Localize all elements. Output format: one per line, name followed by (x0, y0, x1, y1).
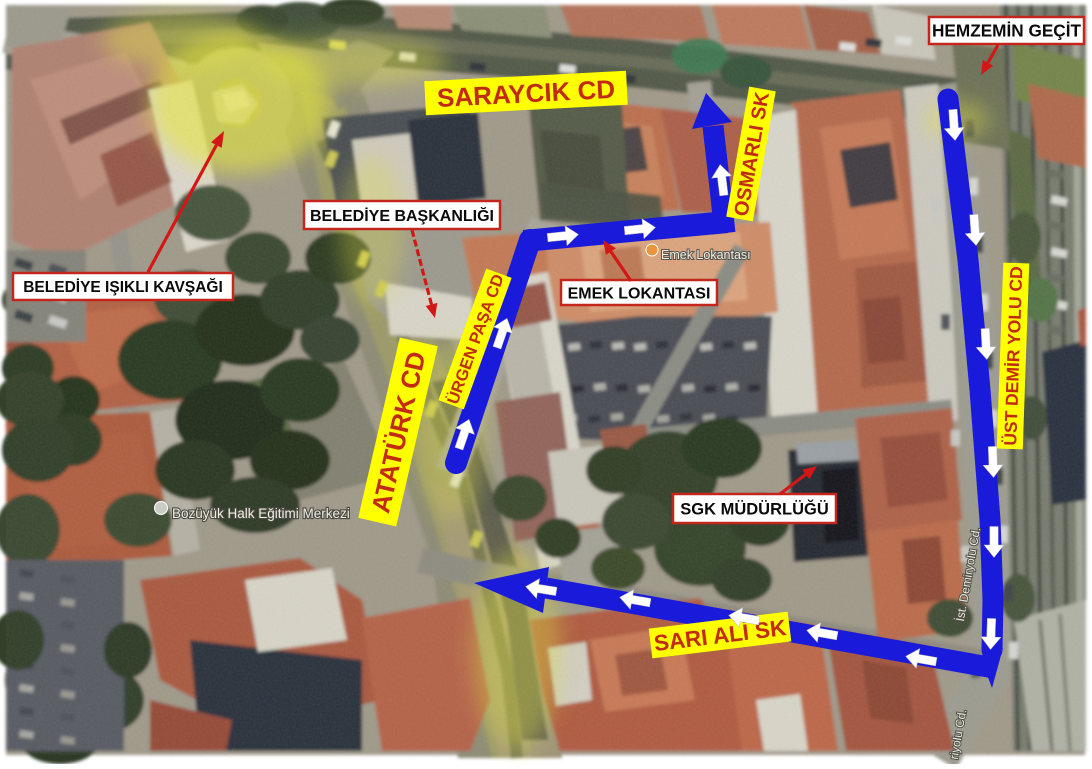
svg-text:Bozüyük Halk Eğitimi Merkezi: Bozüyük Halk Eğitimi Merkezi (172, 506, 350, 521)
svg-text:EMEK LOKANTASI: EMEK LOKANTASI (568, 285, 711, 302)
svg-text:BELEDİYE IŞIKLI KAVŞAĞI: BELEDİYE IŞIKLI KAVŞAĞI (23, 278, 223, 296)
svg-text:SGK MÜDÜRLÜĞÜ: SGK MÜDÜRLÜĞÜ (680, 499, 829, 518)
svg-text:HEMZEMİN GEÇİT: HEMZEMİN GEÇİT (932, 21, 1081, 41)
svg-text:BELEDİYE BAŞKANLIĞI: BELEDİYE BAŞKANLIĞI (310, 206, 494, 225)
svg-text:Emek Lokantası: Emek Lokantası (661, 248, 751, 262)
